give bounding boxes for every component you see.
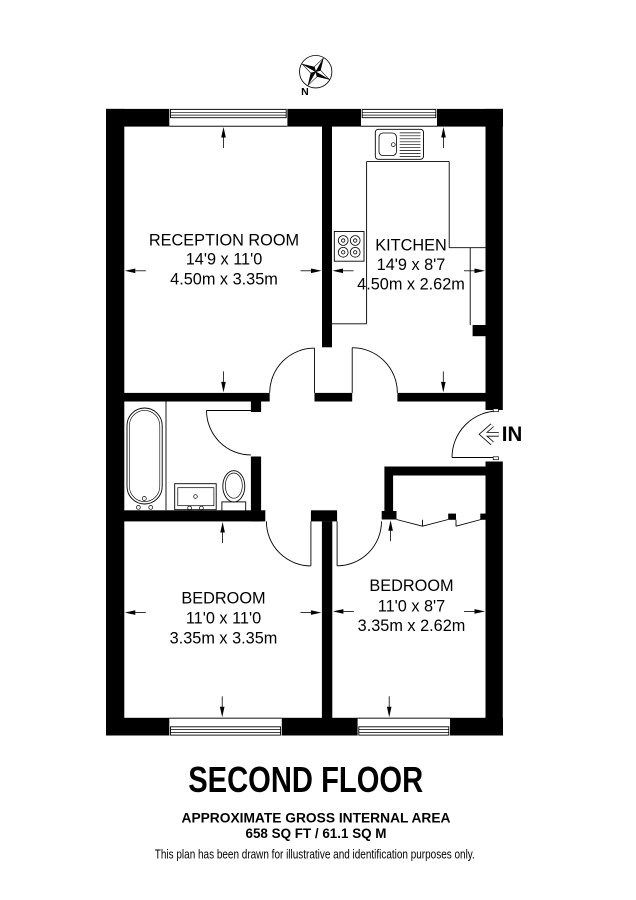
- svg-text:658 SQ FT / 61.1 SQ M: 658 SQ FT / 61.1 SQ M: [246, 826, 387, 842]
- svg-text:N: N: [301, 86, 309, 98]
- svg-text:This plan has been drawn for i: This plan has been drawn for illustrativ…: [155, 847, 475, 862]
- svg-text:BEDROOM: BEDROOM: [181, 589, 265, 607]
- svg-text:BEDROOM: BEDROOM: [369, 577, 453, 595]
- svg-text:11'0 x 11'0: 11'0 x 11'0: [186, 609, 261, 627]
- svg-text:14'9 x 11'0: 14'9 x 11'0: [186, 251, 263, 269]
- svg-text:4.50m x 3.35m: 4.50m x 3.35m: [170, 271, 278, 289]
- svg-text:IN: IN: [502, 423, 523, 446]
- svg-text:4.50m x 2.62m: 4.50m x 2.62m: [357, 276, 465, 294]
- svg-text:KITCHEN: KITCHEN: [375, 236, 446, 254]
- svg-text:RECEPTION ROOM: RECEPTION ROOM: [149, 231, 299, 249]
- svg-text:SECOND FLOOR: SECOND FLOOR: [188, 759, 423, 800]
- svg-text:3.35m x 3.35m: 3.35m x 3.35m: [170, 629, 278, 647]
- svg-text:APPROXIMATE GROSS INTERNAL ARE: APPROXIMATE GROSS INTERNAL AREA: [182, 810, 451, 826]
- svg-text:3.35m x 2.62m: 3.35m x 2.62m: [358, 617, 466, 635]
- svg-text:14'9 x 8'7: 14'9 x 8'7: [377, 256, 446, 274]
- svg-text:11'0 x 8'7: 11'0 x 8'7: [378, 598, 445, 616]
